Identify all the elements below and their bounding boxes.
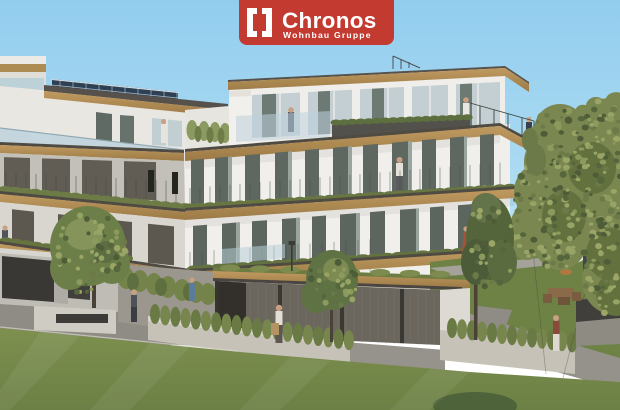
svg-text:Wohnbau Gruppe: Wohnbau Gruppe bbox=[283, 30, 372, 40]
